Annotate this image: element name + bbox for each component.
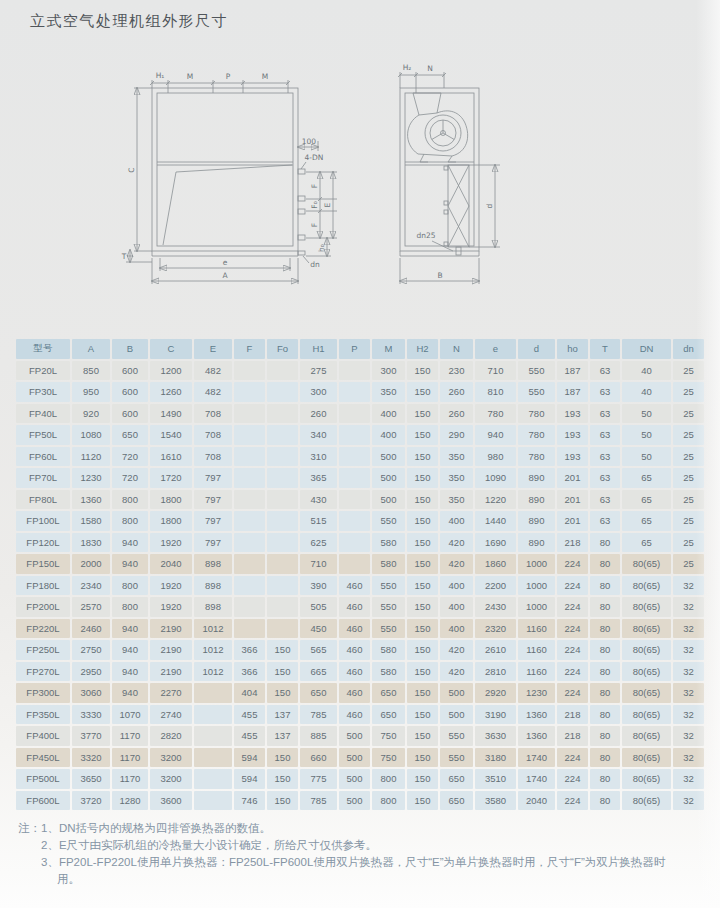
table-cell: 1740 [518,769,555,789]
dim-label-b: B [437,271,442,280]
table-row: FP180L2340800192089839046055015040022001… [16,576,704,596]
table-cell: 594 [234,748,265,768]
table-cell: 450 [300,619,337,639]
table-cell [267,554,298,574]
table-cell: 350 [440,490,473,510]
table-cell: 230 [440,361,473,381]
table-cell: 2190 [150,640,192,660]
table-cell: 1920 [150,597,192,617]
table-cell: 50 [622,425,671,445]
table-cell [267,619,298,639]
table-cell: 224 [557,769,588,789]
table-cell: 3320 [72,748,110,768]
table-row: FP70L12307201720797365500150350109089020… [16,468,704,488]
table-cell: 400 [440,597,473,617]
catalog-page: 立式空气处理机组外形尺寸 [0,0,720,908]
table-cell: 1260 [150,382,192,402]
table-cell: 1160 [518,662,555,682]
table-cell: 25 [673,382,704,402]
table-cell: 32 [673,597,704,617]
table-cell: 1012 [194,619,232,639]
header-cell: ho [557,339,588,359]
table-cell: 2040 [150,554,192,574]
table-cell [194,683,232,703]
table-cell: 1230 [518,683,555,703]
table-cell: 460 [339,597,370,617]
table-cell: FP180L [16,576,70,596]
table-cell: 600 [112,361,148,381]
table-cell: 1540 [150,425,192,445]
note-item: 3、FP20L-FP220L使用单片换热器：FP250L-FP600L使用双片换… [41,854,678,888]
table-cell: 350 [440,447,473,467]
table-cell: 1440 [475,511,516,531]
table-cell: 224 [557,597,588,617]
dim-label-n: N [427,64,433,73]
table-cell: FP150L [16,554,70,574]
table-cell: 800 [372,769,405,789]
table-cell: 187 [557,382,588,402]
table-cell: FP250L [16,640,70,660]
table-cell: 224 [557,619,588,639]
table-cell: 3770 [72,726,110,746]
table-cell: 1090 [475,468,516,488]
table-cell: FP400L [16,726,70,746]
table-cell: 25 [673,447,704,467]
table-cell: 400 [372,404,405,424]
table-cell: 1012 [194,662,232,682]
table-cell [234,597,265,617]
table-cell: 150 [267,640,298,660]
table-cell: 137 [267,705,298,725]
table-cell: 940 [112,619,148,639]
table-cell: 150 [267,683,298,703]
table-cell: 1580 [72,511,110,531]
table-cell: 625 [300,533,337,553]
table-cell: 80(65) [622,726,671,746]
dim-label-100: 100 [302,137,317,146]
header-cell: M [372,339,405,359]
table-cell: FP30L [16,382,70,402]
table-cell: 708 [194,404,232,424]
table-cell: 550 [440,726,473,746]
table-cell: 775 [300,769,337,789]
table-cell [194,791,232,811]
table-cell [339,404,370,424]
table-cell: 750 [372,748,405,768]
header-cell: F [234,339,265,359]
table-row: FP100L1580800180079751555015040014408902… [16,511,704,531]
table-cell: 500 [440,683,473,703]
table-cell: 80 [590,705,620,725]
table-cell: 898 [194,597,232,617]
table-cell: 1920 [150,533,192,553]
table-cell: 3510 [475,769,516,789]
table-cell: 80(65) [622,769,671,789]
table-cell: 2200 [475,576,516,596]
table-cell: 797 [194,533,232,553]
table-cell: 80(65) [622,554,671,574]
table-cell: FP600L [16,791,70,811]
table-cell [339,511,370,531]
table-cell: 550 [372,597,405,617]
table-cell: 482 [194,382,232,402]
header-cell: H1 [300,339,337,359]
table-cell: 80 [590,769,620,789]
table-cell: 224 [557,554,588,574]
table-cell: 800 [112,597,148,617]
table-cell: 2460 [72,619,110,639]
table-cell: 1800 [150,490,192,510]
table-cell: 1360 [518,705,555,725]
table-cell: 708 [194,425,232,445]
dim-label-h2: H₂ [403,63,412,72]
table-cell: 1170 [112,726,148,746]
header-cell: DN [622,339,671,359]
table-cell: FP120L [16,533,70,553]
table-cell: 201 [557,511,588,531]
table-cell: 80 [590,748,620,768]
table-cell [194,769,232,789]
table-cell: 193 [557,425,588,445]
table-cell: 80 [590,576,620,596]
table-cell: 63 [590,404,620,424]
table-cell: 150 [407,468,438,488]
dim-label-h1: H₁ [156,71,165,80]
header-cell: Fo [267,339,298,359]
table-cell: 1610 [150,447,192,467]
table-cell: 1830 [72,533,110,553]
header-cell: d [518,339,555,359]
table-cell [339,361,370,381]
table-cell: 420 [440,662,473,682]
table-cell: 460 [339,705,370,725]
table-cell: 150 [407,382,438,402]
table-cell: 890 [518,468,555,488]
table-cell: 515 [300,511,337,531]
table-cell: 150 [407,511,438,531]
header-cell: 型号 [16,339,70,359]
table-cell [339,468,370,488]
table-cell: 890 [518,533,555,553]
table-cell [234,511,265,531]
table-cell: 150 [407,791,438,811]
header-cell: C [150,339,192,359]
table-cell: 63 [590,382,620,402]
table-body: FP20L85060012004822753001502307105501876… [16,361,704,811]
table-cell: 80 [590,726,620,746]
table-cell: 350 [372,382,405,402]
table-cell: FP270L [16,662,70,682]
table-cell [339,533,370,553]
table-cell: 594 [234,769,265,789]
table-cell [267,361,298,381]
table-cell: FP20L [16,361,70,381]
table-cell: 150 [407,597,438,617]
table-cell: 193 [557,447,588,467]
table-cell: 150 [267,791,298,811]
note-item: 2、E尺寸由实际机组的冷热量大小设计确定，所给尺寸仅供参考。 [41,837,678,854]
table-cell: 25 [673,533,704,553]
table-row: FP200L2570800192089850546055015040024301… [16,597,704,617]
table-cell: 80 [590,619,620,639]
table-cell [234,619,265,639]
table-cell: 600 [112,404,148,424]
table-row: FP350L3330107027404551377854606501505003… [16,705,704,725]
table-cell: 500 [372,447,405,467]
table-cell [267,597,298,617]
table-cell: 505 [300,597,337,617]
table-cell: 1160 [518,619,555,639]
dim-label-e: e [223,258,228,267]
table-cell: 290 [440,425,473,445]
table-cell [267,447,298,467]
table-cell: 3060 [72,683,110,703]
table-cell: 63 [590,361,620,381]
table-cell: 187 [557,361,588,381]
table-cell [234,533,265,553]
table-cell: 1000 [518,576,555,596]
table-cell: 150 [407,490,438,510]
table-cell: 224 [557,640,588,660]
table-cell: 366 [234,640,265,660]
table-cell: 1160 [518,640,555,660]
table-cell: 25 [673,468,704,488]
table-row: FP120L1830940192079762558015042016908902… [16,533,704,553]
table-cell: 2920 [475,683,516,703]
table-cell: 500 [339,769,370,789]
table-row: FP300L3060940227040415065046065015050029… [16,683,704,703]
table-cell: 800 [112,511,148,531]
table-cell: 366 [234,662,265,682]
label-4-dn: 4-DN [305,153,324,162]
table-row: FP250L2750940219010123661505654605801504… [16,640,704,660]
table-cell: 2750 [72,640,110,660]
table-cell: 898 [194,554,232,574]
note-item: 1、DN括号内的规格为四排管换热器的数值。 [41,820,678,837]
table-cell: FP50L [16,425,70,445]
table-cell: 32 [673,662,704,682]
table-cell: 390 [300,576,337,596]
table-cell: 500 [339,726,370,746]
header-cell: dn [673,339,704,359]
table-header-row: 型号ABCEFFoH1PMH2NedhoTDNdn [16,339,704,359]
table-cell: 460 [339,576,370,596]
table-cell: 80(65) [622,619,671,639]
table-cell [267,511,298,531]
table-cell: 750 [372,726,405,746]
table-cell: 80 [590,554,620,574]
table-cell [339,447,370,467]
table-cell: 940 [112,640,148,660]
table-cell: 32 [673,640,704,660]
table-cell: 1000 [518,554,555,574]
table-cell: 201 [557,490,588,510]
table-cell [267,490,298,510]
table-cell [339,490,370,510]
table-cell: 32 [673,726,704,746]
table-cell: 224 [557,683,588,703]
table-cell: 63 [590,511,620,531]
table-cell: 63 [590,425,620,445]
table-cell: 2190 [150,662,192,682]
table-cell: FP500L [16,769,70,789]
table-cell: 665 [300,662,337,682]
table-cell: 420 [440,533,473,553]
table-cell: 32 [673,705,704,725]
table-cell: 218 [557,726,588,746]
table-cell [234,490,265,510]
table-cell: 650 [300,683,337,703]
table-cell: 150 [407,726,438,746]
table-cell: 218 [557,705,588,725]
front-view-drawing: H₁ M P M C T e A 100 4-DN [121,71,337,284]
table-cell: 940 [112,683,148,703]
table-cell: FP300L [16,683,70,703]
table-cell [194,748,232,768]
header-cell: H2 [407,339,438,359]
table-cell: 710 [475,361,516,381]
table-cell: 780 [475,404,516,424]
table-cell: 65 [622,490,671,510]
table-row: FP40L92060014907082604001502607807801936… [16,404,704,424]
table-cell: 660 [300,748,337,768]
table-cell: 65 [622,533,671,553]
table-cell: 340 [300,425,337,445]
table-cell: 80 [590,662,620,682]
table-cell: 940 [112,554,148,574]
table-cell: 1860 [475,554,516,574]
table-cell: 3330 [72,705,110,725]
table-cell: 500 [339,748,370,768]
table-cell: 550 [372,576,405,596]
table-cell: 150 [267,748,298,768]
table-cell: 300 [300,382,337,402]
table-cell: 65 [622,511,671,531]
table-cell: 2320 [475,619,516,639]
table-cell: 885 [300,726,337,746]
table-cell: 2950 [72,662,110,682]
table-cell: 63 [590,468,620,488]
table-cell: 500 [339,791,370,811]
table-cell: 80 [590,640,620,660]
table-cell: 3190 [475,705,516,725]
table-cell [267,404,298,424]
table-cell [234,554,265,574]
label-dn25: dn25 [416,231,435,240]
table-cell: 201 [557,468,588,488]
table-cell: 1170 [112,748,148,768]
dim-label-p: P [226,72,231,81]
table-cell: 3630 [475,726,516,746]
table-cell [194,726,232,746]
dim-label-a: A [222,271,228,280]
table-cell [267,382,298,402]
table-cell: 940 [112,662,148,682]
table-cell: 1012 [194,640,232,660]
table-cell: 150 [407,705,438,725]
table-cell: 650 [440,769,473,789]
notes-list: 1、DN括号内的规格为四排管换热器的数值。2、E尺寸由实际机组的冷热量大小设计确… [41,820,678,888]
table-row: FP30L95060012604823003501502608105501876… [16,382,704,402]
notes: 注： 1、DN括号内的规格为四排管换热器的数值。2、E尺寸由实际机组的冷热量大小… [18,820,678,888]
table-cell: FP60L [16,447,70,467]
table-cell: 310 [300,447,337,467]
table-cell: 300 [372,361,405,381]
table-cell: 25 [673,361,704,381]
table-cell: 2270 [150,683,192,703]
table-row: FP80L13608001800797430500150350122089020… [16,490,704,510]
table-cell: 455 [234,705,265,725]
table-cell: 898 [194,576,232,596]
table-cell: 810 [475,382,516,402]
table-cell: 920 [72,404,110,424]
table-cell: FP100L [16,511,70,531]
table-cell [234,382,265,402]
table-cell: 1220 [475,490,516,510]
table-cell: 80(65) [622,748,671,768]
table-cell: 32 [673,683,704,703]
table-cell: FP350L [16,705,70,725]
table-cell: 404 [234,683,265,703]
table-cell: 746 [234,791,265,811]
table-cell: 150 [407,769,438,789]
table-cell: 275 [300,361,337,381]
table-cell: 550 [440,748,473,768]
table-cell: 950 [72,382,110,402]
dim-label-e-vert: E [323,202,332,207]
dim-label-c: C [127,167,136,172]
table-cell: 1800 [150,511,192,531]
table-cell: 500 [372,490,405,510]
table-cell: 150 [267,662,298,682]
table-cell: 32 [673,791,704,811]
table-cell: 218 [557,533,588,553]
table-cell: 80(65) [622,791,671,811]
table-cell: 420 [440,554,473,574]
table-cell: 580 [372,533,405,553]
table-cell: 50 [622,447,671,467]
table-cell: 400 [372,425,405,445]
table-cell: 797 [194,468,232,488]
table-row: FP150L2000940204089871058015042018601000… [16,554,704,574]
table-cell: FP40L [16,404,70,424]
dim-label-d: d [485,203,494,208]
table-cell: 1360 [518,726,555,746]
table-cell: 800 [112,490,148,510]
table-cell: 600 [112,382,148,402]
table-cell: 80(65) [622,597,671,617]
table-cell: 720 [112,468,148,488]
table-cell: 150 [407,533,438,553]
table-cell: 80 [590,683,620,703]
table-cell [234,468,265,488]
table-cell: 137 [267,726,298,746]
table-cell: 2430 [475,597,516,617]
table-cell: 420 [440,640,473,660]
table-cell: FP200L [16,597,70,617]
table-cell [267,468,298,488]
table-cell: 2570 [72,597,110,617]
table-cell: 650 [112,425,148,445]
table-cell: 2340 [72,576,110,596]
table-cell: 365 [300,468,337,488]
table-cell: 80 [590,791,620,811]
table-cell: 580 [372,554,405,574]
table-cell: 80(65) [622,640,671,660]
table-cell: 1920 [150,576,192,596]
table-cell: 32 [673,619,704,639]
dim-label-t: T [121,252,127,261]
